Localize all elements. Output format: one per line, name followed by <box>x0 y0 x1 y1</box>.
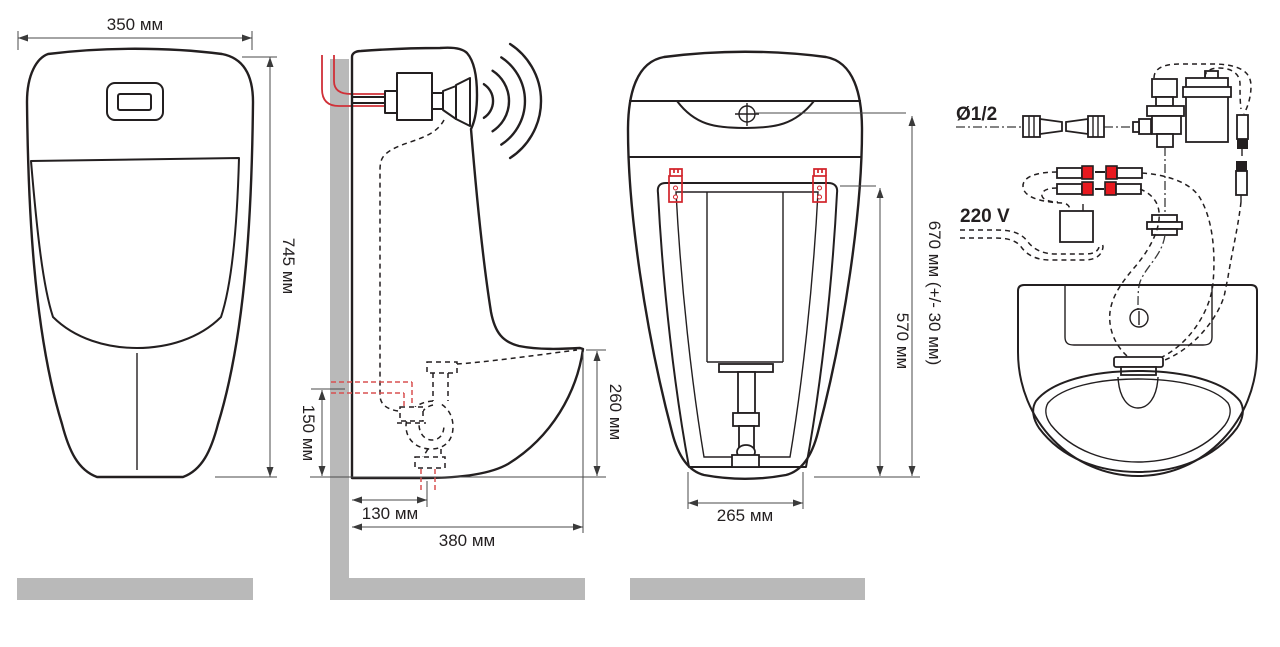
water-connection-label: Ø1/2 <box>956 104 997 125</box>
floor <box>17 578 253 600</box>
inlet-height-label: 670 мм (+/- 30 мм) <box>925 221 944 366</box>
flush-line <box>1138 235 1165 312</box>
power-label: 220 V <box>960 206 1010 227</box>
outlet-offset-label: 130 мм <box>362 504 418 523</box>
bowl-outer <box>1033 371 1243 472</box>
front-view: 350 мм 745 мм <box>17 15 298 600</box>
drawing-canvas: 350 мм 745 мм <box>0 0 1280 647</box>
sensor-eye <box>118 94 151 110</box>
dimension-outlet-offset: 130 мм <box>352 481 427 523</box>
sensor-mount <box>432 93 443 109</box>
floor <box>630 578 865 600</box>
depth-label: 380 мм <box>439 531 495 550</box>
inlet-port <box>735 103 759 126</box>
dimension-base-width: 265 мм <box>688 472 803 525</box>
transformer <box>1060 204 1093 242</box>
top-view-outline <box>1018 285 1257 476</box>
bowl-inner <box>1046 379 1230 462</box>
siphon-trap <box>397 362 457 468</box>
dimension-inlet-height: 670 мм (+/- 30 мм) <box>912 116 944 476</box>
flush-valve-unit <box>352 73 470 126</box>
front-height-label: 745 мм <box>279 238 298 294</box>
wall <box>330 59 349 600</box>
wall-outlet-elbow <box>400 407 423 421</box>
bowl-surface-line <box>457 350 577 364</box>
front-width-label: 350 мм <box>107 15 163 34</box>
outlet-height-label: 150 мм <box>299 405 318 461</box>
sensor-window <box>107 83 163 120</box>
front-edge-height-label: 260 мм <box>606 384 625 440</box>
solenoid-valve-box <box>397 73 432 120</box>
sound-waves-icon <box>484 44 541 158</box>
solenoid-valve-unit <box>1133 71 1231 147</box>
dimension-front-edge-height: 260 мм <box>586 350 625 476</box>
floor <box>349 578 585 600</box>
urinal-technical-drawing: 350 мм 745 мм <box>0 0 1280 647</box>
pipe-fittings <box>1023 116 1104 137</box>
bracket-height-label: 570 мм <box>893 313 912 369</box>
mounting-bracket-right <box>813 169 826 202</box>
outlet-coupling <box>1147 215 1182 235</box>
sensor-emitter <box>456 78 470 126</box>
dimension-bracket-height: 570 мм <box>880 188 912 476</box>
cable-connectors <box>1057 166 1142 195</box>
flush-spreader <box>1114 357 1163 408</box>
drain-pipe-assembly <box>719 364 773 467</box>
sensor-probe-upper <box>1237 115 1248 156</box>
base-width-label: 265 мм <box>717 506 773 525</box>
tank-cavity <box>707 192 783 362</box>
dimension-front-width: 350 мм <box>18 15 252 50</box>
sensor-probe-lower <box>1236 161 1247 202</box>
trap-outlet <box>415 457 445 468</box>
bowl-rim-front <box>31 158 239 348</box>
dimension-front-height: 745 мм <box>215 57 298 477</box>
mounting-bracket-left <box>669 169 682 202</box>
sensor-cone <box>443 86 456 119</box>
pipe-connector <box>385 91 397 113</box>
back-view: 670 мм (+/- 30 мм) 570 мм 265 мм <box>628 52 944 600</box>
urinal-front-outline <box>27 49 253 477</box>
side-view: 150 мм 130 мм 380 мм 260 мм <box>299 44 625 600</box>
urinal-top-view <box>1018 285 1257 476</box>
installation-diagram: Ø1/2 220 V <box>956 64 1257 476</box>
